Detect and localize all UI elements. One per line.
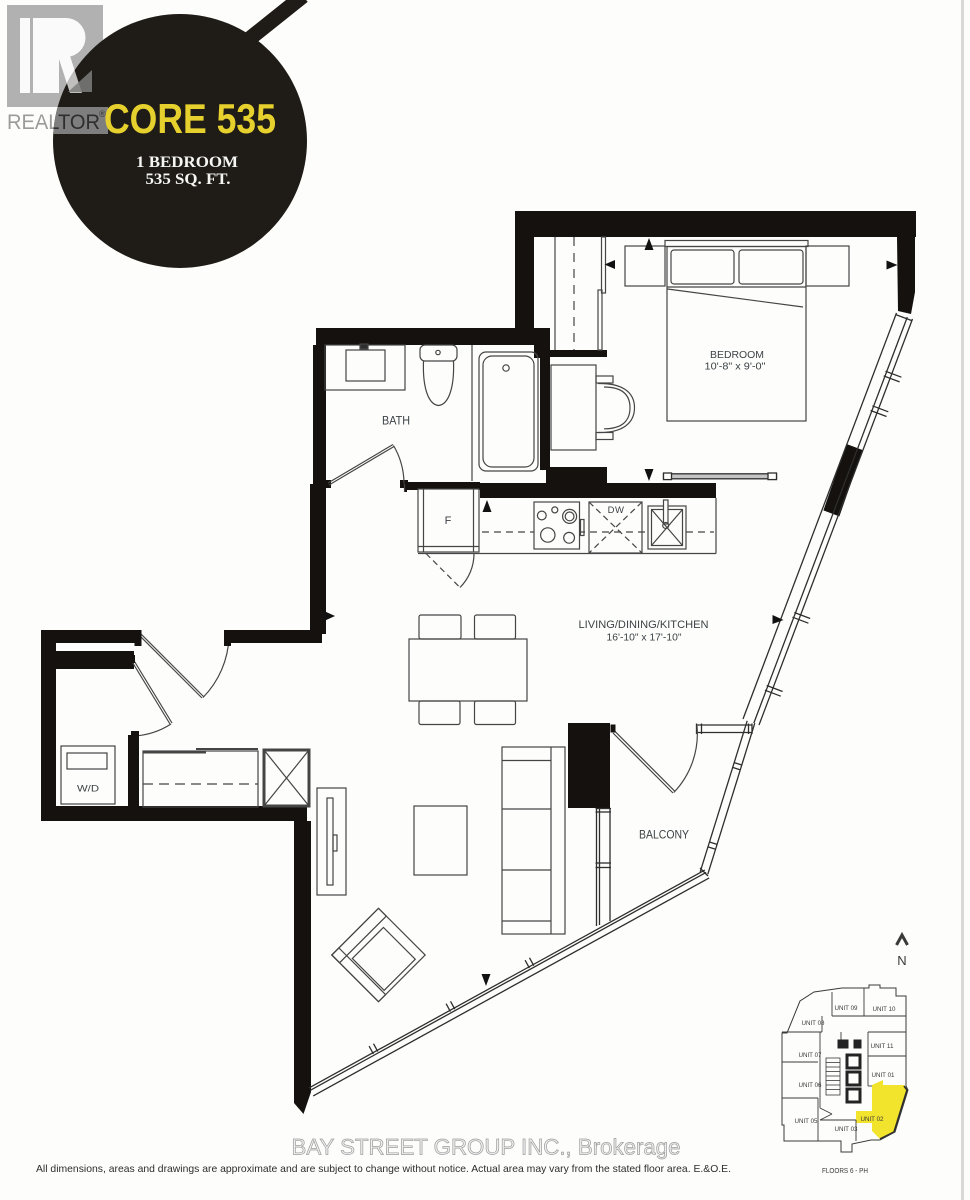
svg-text:BEDROOM: BEDROOM — [710, 350, 764, 361]
svg-text:16'-10" x 17'-10": 16'-10" x 17'-10" — [607, 633, 682, 644]
svg-text:UNIT 06: UNIT 06 — [799, 1082, 823, 1089]
svg-text:UNIT 05: UNIT 05 — [795, 1118, 819, 1125]
svg-text:UNIT 09: UNIT 09 — [835, 1005, 859, 1012]
svg-text:10'-8" x 9'-0": 10'-8" x 9'-0" — [705, 362, 766, 373]
svg-text:F: F — [445, 515, 452, 527]
svg-text:BALCONY: BALCONY — [639, 830, 689, 842]
svg-text:UNIT 07: UNIT 07 — [799, 1052, 823, 1059]
svg-text:BATH: BATH — [382, 416, 410, 428]
svg-text:535 SQ. FT.: 535 SQ. FT. — [146, 171, 231, 188]
svg-text:W/D: W/D — [77, 784, 100, 794]
svg-text:1 BEDROOM: 1 BEDROOM — [136, 154, 238, 171]
svg-text:UNIT 03: UNIT 03 — [835, 1126, 859, 1133]
svg-text:UNIT 10: UNIT 10 — [873, 1006, 897, 1013]
svg-text:UNIT 11: UNIT 11 — [871, 1043, 895, 1050]
svg-text:UNIT 08: UNIT 08 — [802, 1020, 826, 1027]
svg-text:FLOORS 6 - PH: FLOORS 6 - PH — [822, 1168, 868, 1175]
svg-text:BAY STREET GROUP INC., Brokera: BAY STREET GROUP INC., Brokerage — [292, 1135, 681, 1160]
svg-text:DW: DW — [608, 505, 625, 516]
svg-text:CORE 535: CORE 535 — [104, 97, 276, 143]
svg-text:UNIT 02: UNIT 02 — [861, 1116, 885, 1123]
svg-text:UNIT 01: UNIT 01 — [872, 1072, 896, 1079]
svg-text:LIVING/DINING/KITCHEN: LIVING/DINING/KITCHEN — [579, 619, 709, 631]
svg-text:N: N — [897, 953, 906, 968]
svg-text:All dimensions, areas and draw: All dimensions, areas and drawings are a… — [36, 1164, 731, 1175]
